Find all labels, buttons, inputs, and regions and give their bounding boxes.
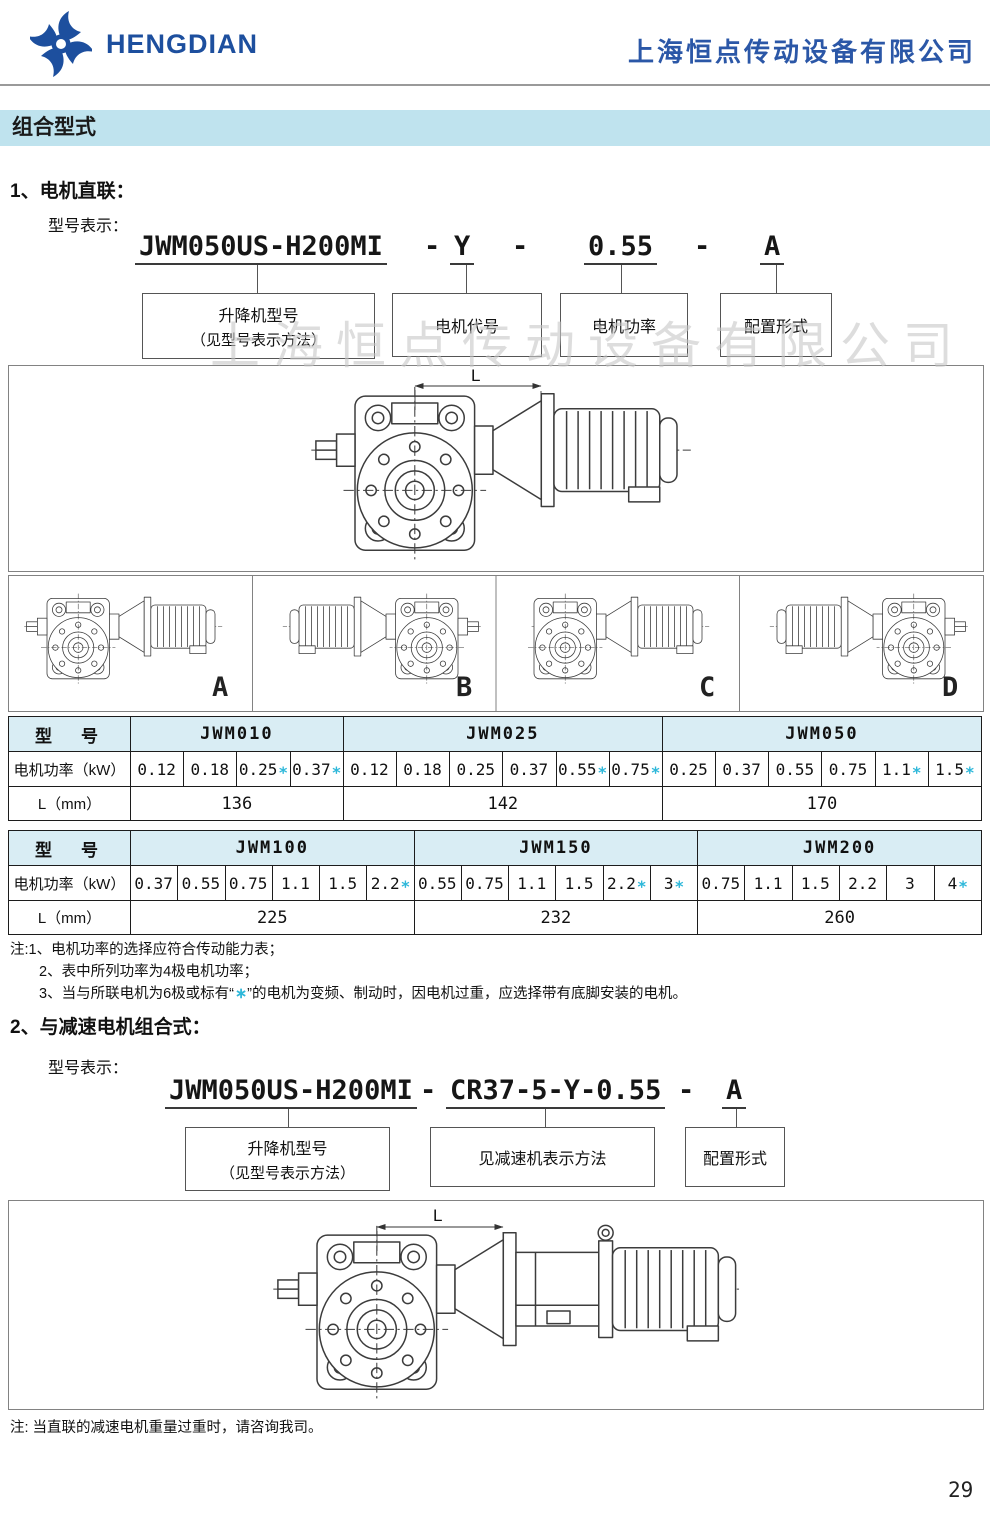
power-cell: 0.12 [131, 752, 184, 787]
model-code-dash: - [694, 230, 710, 263]
power-value: 0.37 [134, 874, 173, 893]
table-row: 电机功率（kW） 0.37 0.55 0.75 1.1 1.5 2.2∗ 0.5… [9, 866, 982, 901]
power-cell: 1.5 [320, 866, 367, 901]
model-group-header: JWM200 [698, 831, 982, 866]
power-cell: 0.37 [131, 866, 178, 901]
star-mark: ∗ [958, 874, 968, 893]
star-mark: ∗ [651, 760, 661, 779]
spec-table-large-models: 型 号 JWM100 JWM150 JWM200 电机功率（kW） 0.37 0… [8, 830, 982, 935]
power-cell: 4∗ [934, 866, 981, 901]
model-code-base-2: JWM050US-H200MI [165, 1074, 417, 1109]
power-cell: 1.1 [272, 866, 319, 901]
table-row: 型 号 JWM100 JWM150 JWM200 [9, 831, 982, 866]
power-cell: 0.25 [450, 752, 503, 787]
length-cell: 136 [131, 787, 344, 821]
model-label-2: 型号表示： [48, 1054, 128, 1078]
power-cell: 1.5 [556, 866, 603, 901]
power-value: 1.5 [565, 874, 594, 893]
variant-letter-c: C [699, 672, 715, 703]
model-code-dash: - [424, 230, 440, 263]
star-mark: ∗ [965, 760, 975, 779]
length-cell: 170 [662, 787, 981, 821]
section2-heading: 2、与减速电机组合式： [10, 1012, 211, 1039]
power-cell: 0.18 [396, 752, 449, 787]
power-cell: 1.1 [745, 866, 792, 901]
callout-text: 升降机型号 [218, 302, 298, 326]
star-mark: ∗ [278, 760, 288, 779]
callout-text: 电机代号 [435, 313, 499, 337]
note-text: ”的电机为变频、制动时，因电机过重，应选择带有底脚安装的电机。 [247, 986, 687, 1002]
power-cell: 0.37∗ [290, 752, 343, 787]
callout-text: （见型号表示方法） [191, 329, 326, 350]
power-value: 0.25 [669, 760, 708, 779]
brand-block: HENGDIAN [30, 8, 258, 80]
model-code-motor: Y [450, 230, 474, 265]
bottom-note: 注: 当直联的减速电机重量过重时，请咨询我司。 [10, 1416, 323, 1437]
power-cell: 0.75 [822, 752, 875, 787]
power-cell: 1.5 [792, 866, 839, 901]
note-line-1: 注:1、电机功率的选择应符合传动能力表； [10, 938, 283, 959]
callout-leader [466, 265, 467, 293]
power-value: 1.5 [935, 760, 964, 779]
model-group-header: JWM050 [662, 717, 981, 752]
power-value: 3 [905, 874, 915, 893]
model-code-base-1: JWM050US-H200MI [135, 230, 387, 265]
model-label-1: 型号表示： [48, 212, 128, 236]
table-row: L（mm） 136 142 170 [9, 787, 982, 821]
catalog-page: HENGDIAN 上海恒点传动设备有限公司 组合型式 1、电机直联： 型号表示：… [0, 0, 990, 1513]
power-cell: 1.1 [509, 866, 556, 901]
model-code-power: 0.55 [584, 230, 657, 265]
callout-lifter-model: 升降机型号 （见型号表示方法） [185, 1127, 390, 1191]
callout-leader [288, 1109, 289, 1127]
power-value: 0.18 [403, 760, 442, 779]
power-value: 0.55 [182, 874, 221, 893]
model-code-reducer: CR37-5-Y-0.55 [446, 1074, 665, 1109]
row-label-length: L（mm） [9, 901, 131, 935]
power-value: 2.2 [607, 874, 636, 893]
model-group-header: JWM025 [343, 717, 662, 752]
callout-text: 升降机型号 [247, 1135, 327, 1159]
model-code-dash: - [512, 230, 528, 263]
note-line-2: 2、表中所列功率为4极电机功率； [39, 960, 258, 981]
power-value: 0.12 [137, 760, 176, 779]
table-row: 型 号 JWM010 JWM025 JWM050 [9, 717, 982, 752]
drawing-frame-geared: L [8, 1200, 984, 1410]
power-cell: 1.1∗ [875, 752, 928, 787]
power-cell: 1.5∗ [928, 752, 981, 787]
callout-reducer-notation: 见减速机表示方法 [430, 1127, 655, 1187]
config-variants-diagram [9, 576, 983, 711]
power-value: 1.5 [801, 874, 830, 893]
header-divider [0, 84, 990, 86]
table-row: L（mm） 225 232 260 [9, 901, 982, 935]
power-cell: 0.25∗ [237, 752, 290, 787]
gearmotor-direct-diagram: L [9, 366, 983, 571]
power-value: 0.75 [465, 874, 504, 893]
callout-text: 配置形式 [744, 313, 808, 337]
section1-heading: 1、电机直联： [10, 176, 135, 203]
power-value: 0.75 [702, 874, 741, 893]
variant-letter-a: A [212, 672, 228, 703]
model-group-header: JWM100 [131, 831, 415, 866]
power-cell: 0.55 [414, 866, 461, 901]
power-cell: 0.75∗ [609, 752, 662, 787]
model-code-config: A [722, 1074, 746, 1109]
row-label-power: 电机功率（kW） [9, 752, 131, 787]
power-value: 0.75 [829, 760, 868, 779]
model-group-header: JWM150 [414, 831, 698, 866]
power-value: 2.2 [371, 874, 400, 893]
power-value: 1.1 [754, 874, 783, 893]
page-number: 29 [948, 1478, 973, 1502]
note-text: 3、当与所联电机为6极或标有“ [39, 986, 234, 1002]
callout-motor-power: 电机功率 [560, 293, 688, 357]
variant-letter-b: B [456, 672, 472, 703]
length-cell: 260 [698, 901, 982, 935]
power-cell: 0.55 [178, 866, 225, 901]
note-line-3: 3、当与所联电机为6极或标有“∗”的电机为变频、制动时，因电机过重，应选择带有底… [39, 982, 687, 1003]
power-cell: 0.25 [662, 752, 715, 787]
power-cell: 3∗ [650, 866, 697, 901]
model-group-header: JWM010 [131, 717, 344, 752]
power-cell: 0.37 [716, 752, 769, 787]
power-cell: 2.2∗ [367, 866, 414, 901]
callout-config-form: 配置形式 [685, 1127, 785, 1187]
callout-leader [257, 265, 258, 293]
power-cell: 0.75 [698, 866, 745, 901]
power-value: 0.55 [418, 874, 457, 893]
power-value: 0.37 [722, 760, 761, 779]
brand-name: HENGDIAN [106, 29, 258, 60]
power-value: 0.18 [191, 760, 230, 779]
dimension-L-label: L [433, 1206, 442, 1225]
length-cell: 225 [131, 901, 415, 935]
star-mark: ∗ [637, 874, 647, 893]
power-value: 0.12 [350, 760, 389, 779]
callout-text: 见减速机表示方法 [478, 1145, 606, 1169]
power-value: 1.1 [281, 874, 310, 893]
spec-table-small-models: 型 号 JWM010 JWM025 JWM050 电机功率（kW） 0.12 0… [8, 716, 982, 821]
star-mark: ∗ [332, 760, 342, 779]
callout-config-form: 配置形式 [720, 293, 832, 357]
callout-text: 配置形式 [703, 1145, 767, 1169]
callout-leader [776, 265, 777, 293]
star-mark: ∗ [912, 760, 922, 779]
model-code-dash: - [678, 1074, 694, 1107]
col-header-model: 型 号 [9, 831, 131, 866]
star-mark: ∗ [235, 986, 247, 1002]
power-value: 0.75 [229, 874, 268, 893]
dimension-L-label: L [471, 366, 480, 385]
callout-leader [545, 1109, 546, 1127]
star-mark: ∗ [675, 874, 685, 893]
power-cell: 2.2 [839, 866, 886, 901]
power-cell: 0.75 [461, 866, 508, 901]
pinwheel-logo-icon [30, 11, 92, 77]
callout-leader [736, 1109, 737, 1127]
power-value: 2.2 [848, 874, 877, 893]
power-value: 1.5 [328, 874, 357, 893]
power-value: 4 [948, 874, 958, 893]
callout-leader [621, 265, 622, 293]
model-code-dash: - [420, 1074, 436, 1107]
length-cell: 142 [343, 787, 662, 821]
variant-letter-d: D [942, 672, 958, 703]
power-value: 0.75 [611, 760, 650, 779]
power-value: 0.25 [456, 760, 495, 779]
drawing-frame-direct: L [8, 365, 984, 572]
section-title-band: 组合型式 [0, 110, 990, 146]
power-value: 0.55 [776, 760, 815, 779]
callout-text: 电机功率 [592, 313, 656, 337]
power-cell: 0.75 [225, 866, 272, 901]
power-value: 0.55 [558, 760, 597, 779]
power-value: 3 [664, 874, 674, 893]
row-label-length: L（mm） [9, 787, 131, 821]
power-cell: 0.12 [343, 752, 396, 787]
row-label-power: 电机功率（kW） [9, 866, 131, 901]
power-value: 0.37 [292, 760, 331, 779]
table-row: 电机功率（kW） 0.12 0.18 0.25∗ 0.37∗ 0.12 0.18… [9, 752, 982, 787]
callout-motor-code: 电机代号 [392, 293, 542, 357]
power-value: 0.25 [239, 760, 278, 779]
company-name: 上海恒点传动设备有限公司 [628, 32, 976, 69]
gearmotor-geared-diagram: L [9, 1201, 983, 1409]
power-value: 1.1 [517, 874, 546, 893]
power-cell: 0.55 [769, 752, 822, 787]
power-cell: 2.2∗ [603, 866, 650, 901]
power-value: 0.37 [510, 760, 549, 779]
star-mark: ∗ [401, 874, 411, 893]
power-cell: 0.37 [503, 752, 556, 787]
power-cell: 0.18 [184, 752, 237, 787]
callout-lifter-model: 升降机型号 （见型号表示方法） [142, 293, 375, 359]
power-cell: 0.55∗ [556, 752, 609, 787]
length-cell: 232 [414, 901, 698, 935]
model-code-config: A [760, 230, 784, 265]
col-header-model: 型 号 [9, 717, 131, 752]
power-value: 1.1 [882, 760, 911, 779]
power-cell: 3 [887, 866, 934, 901]
callout-text: （见型号表示方法） [220, 1162, 355, 1183]
config-variants-panel [8, 575, 984, 712]
star-mark: ∗ [598, 760, 608, 779]
